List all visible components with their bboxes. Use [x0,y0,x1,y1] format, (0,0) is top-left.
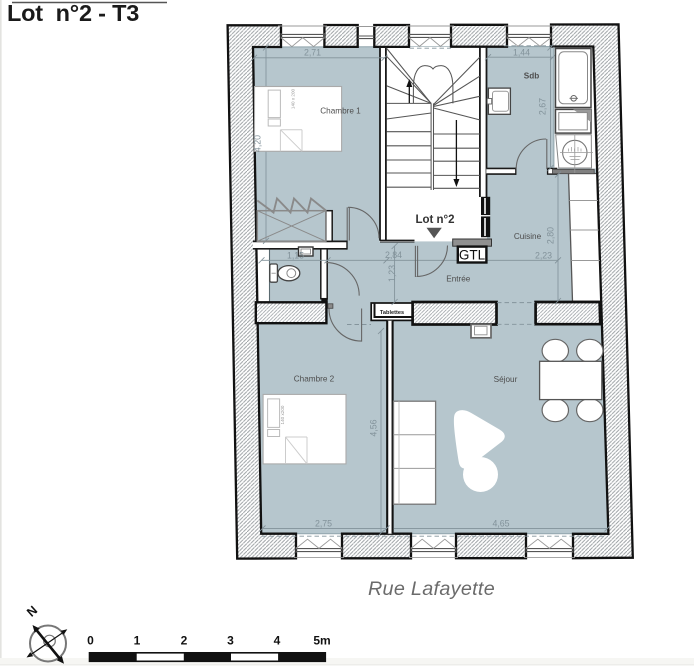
svg-text:5m: 5m [313,634,330,648]
svg-text:1: 1 [134,634,141,648]
svg-text:Chambre 2: Chambre 2 [294,375,335,384]
svg-text:Lot n°2 - T3: Lot n°2 - T3 [7,0,139,26]
svg-text:2,80: 2,80 [546,227,556,244]
svg-text:GTL: GTL [459,247,486,262]
svg-text:2,84: 2,84 [385,250,402,260]
svg-text:Séjour: Séjour [494,375,518,384]
svg-text:3: 3 [227,634,234,648]
svg-text:4,56: 4,56 [369,419,379,436]
svg-text:Tablettes: Tablettes [380,310,404,316]
svg-text:2,71: 2,71 [304,48,321,58]
svg-text:N: N [24,603,40,619]
svg-text:Cuisine: Cuisine [514,232,542,241]
svg-text:Sdb: Sdb [524,72,539,81]
svg-text:140 x 200: 140 x 200 [291,88,296,109]
svg-text:0: 0 [87,634,94,648]
svg-text:Lot n°2: Lot n°2 [415,214,454,226]
svg-text:2,67: 2,67 [538,98,548,115]
svg-text:1,15: 1,15 [287,251,304,261]
svg-text:2,23: 2,23 [535,251,552,261]
svg-text:1,44: 1,44 [513,48,530,58]
svg-text:4,65: 4,65 [492,519,509,529]
svg-text:Entrée: Entrée [446,274,471,283]
svg-text:1,23: 1,23 [387,265,397,282]
svg-text:4: 4 [274,634,281,648]
svg-text:4,20: 4,20 [253,135,263,152]
svg-text:2,75: 2,75 [315,519,332,529]
svg-text:140 x200: 140 x200 [280,405,285,424]
svg-text:Rue Lafayette: Rue Lafayette [368,578,495,600]
svg-text:2: 2 [181,634,188,648]
svg-text:Chambre 1: Chambre 1 [320,107,361,116]
